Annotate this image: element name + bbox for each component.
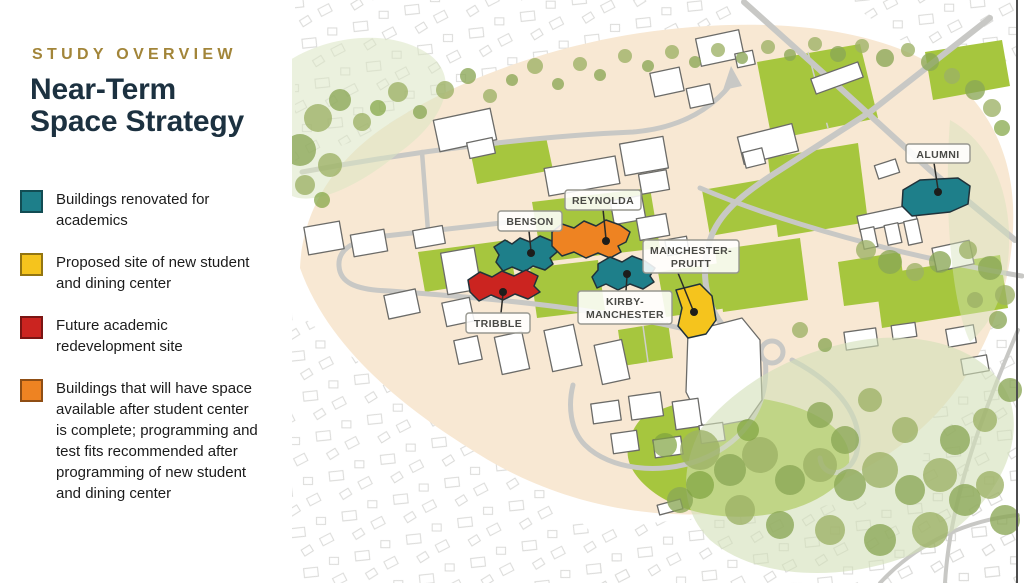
legend-swatch-orange <box>20 379 43 402</box>
map-label-alumni: ALUMNI <box>906 144 970 163</box>
info-panel: STUDY OVERVIEW Near-Term Space Strategy … <box>0 0 292 583</box>
map-label-tribble: TRIBBLE <box>466 313 530 333</box>
building-tribble <box>468 270 540 301</box>
map-label-manchester-pruitt: MANCHESTER- PRUITT <box>643 240 739 273</box>
map-label-reynolda: REYNOLDA <box>565 190 641 210</box>
svg-text:REYNOLDA: REYNOLDA <box>572 195 634 207</box>
page-title: Near-Term Space Strategy <box>30 74 292 139</box>
svg-text:MANCHESTER: MANCHESTER <box>586 309 664 321</box>
legend-label: Buildings that will have space available… <box>56 378 258 504</box>
legend: Buildings renovated for academics Propos… <box>30 189 292 525</box>
building-reynolda <box>552 220 630 258</box>
study-overview-label: STUDY OVERVIEW <box>32 46 292 64</box>
svg-text:MANCHESTER-: MANCHESTER- <box>650 245 732 257</box>
legend-item-proposed-site: Proposed site of new student and dining … <box>30 252 292 294</box>
legend-swatch-yellow <box>20 253 43 276</box>
svg-text:ALUMNI: ALUMNI <box>916 149 959 161</box>
legend-item-redevelopment: Future academic redevelopment site <box>30 315 292 357</box>
svg-text:PRUITT: PRUITT <box>671 258 712 270</box>
svg-text:BENSON: BENSON <box>506 216 553 228</box>
svg-text:KIRBY-: KIRBY- <box>606 296 644 308</box>
building-benson <box>494 236 557 272</box>
legend-label: Proposed site of new student and dining … <box>56 252 258 294</box>
legend-label: Future academic redevelopment site <box>56 315 258 357</box>
page-edge-line <box>1016 0 1018 583</box>
legend-swatch-teal <box>20 190 43 213</box>
slide: BENSON REYNOLDA MANCHESTER- PRUITT KIRBY… <box>0 0 1024 583</box>
legend-item-space-available: Buildings that will have space available… <box>30 378 292 504</box>
svg-text:TRIBBLE: TRIBBLE <box>474 318 522 330</box>
legend-swatch-red <box>20 316 43 339</box>
map-label-benson: BENSON <box>498 211 562 231</box>
legend-item-renovated: Buildings renovated for academics <box>30 189 292 231</box>
legend-label: Buildings renovated for academics <box>56 189 258 231</box>
map-label-kirby-manchester: KIRBY- MANCHESTER <box>578 291 672 324</box>
